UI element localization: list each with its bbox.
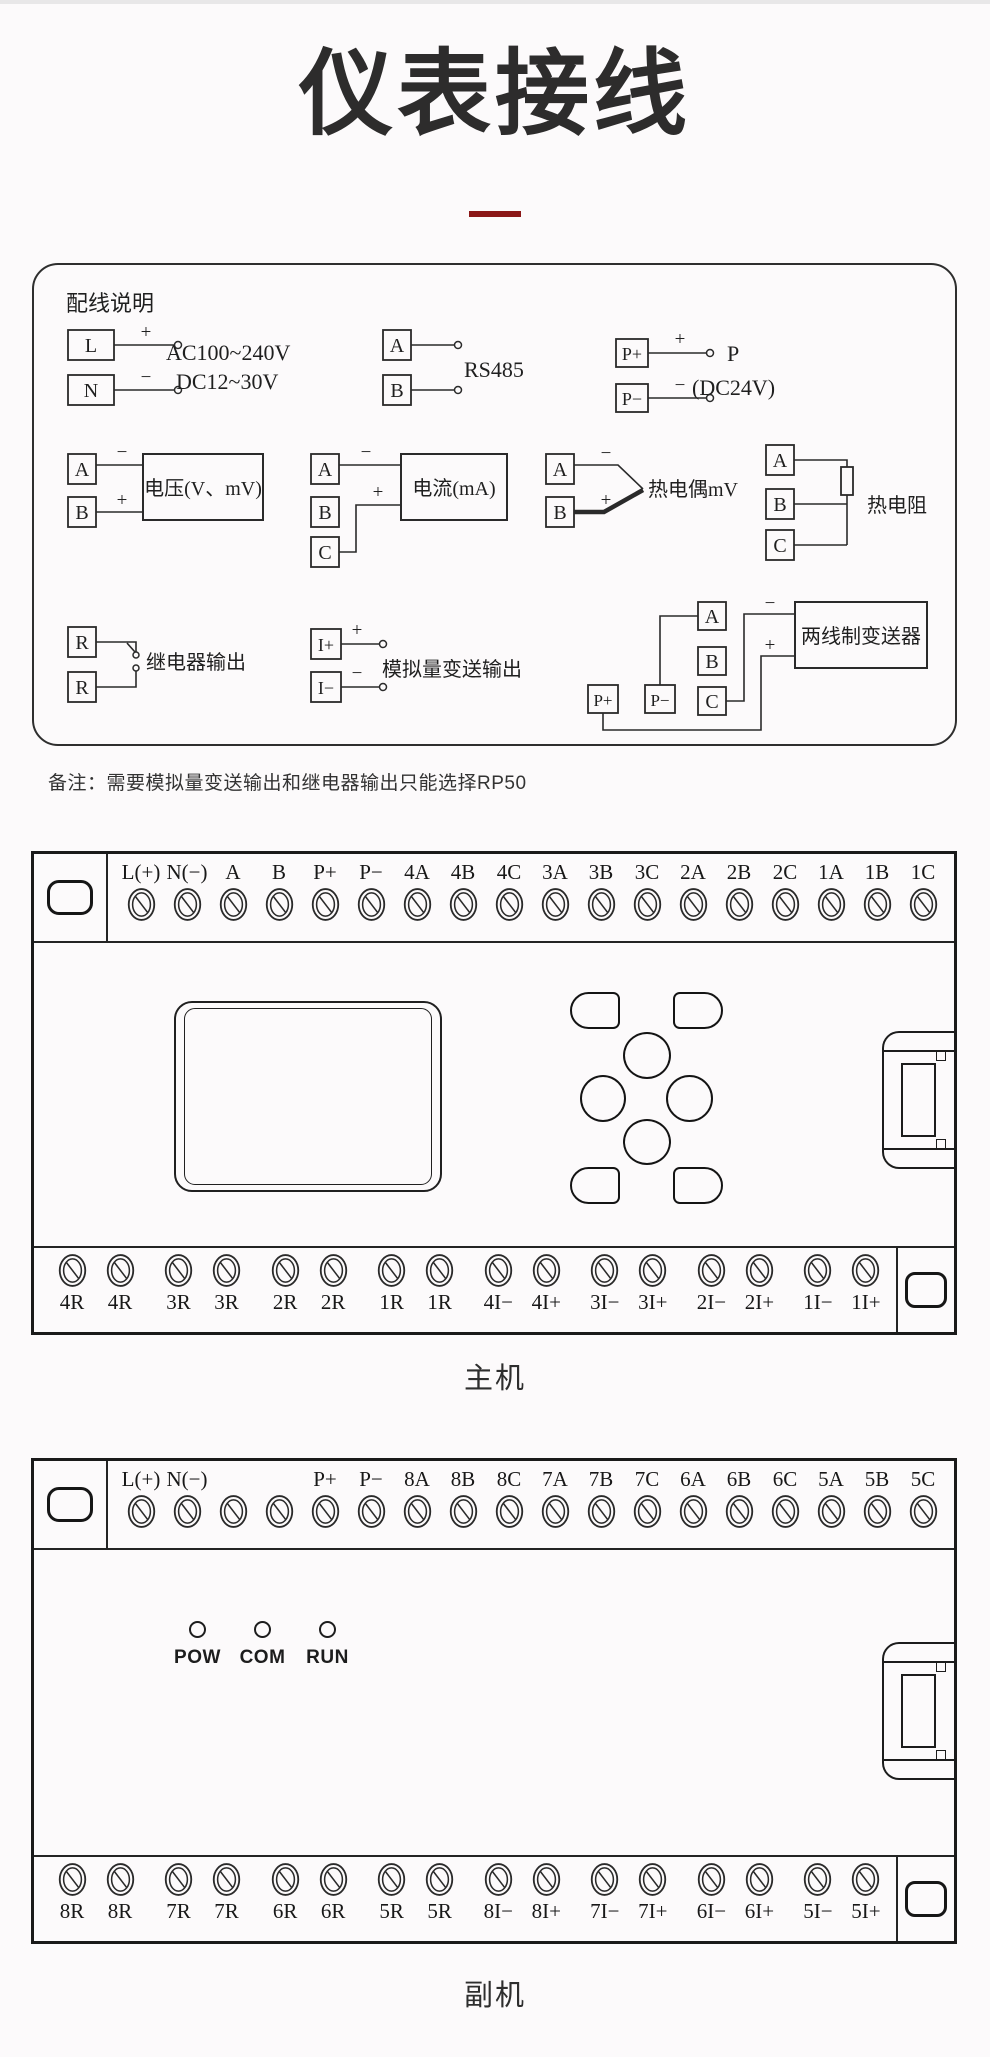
- terminal-label: 5B: [865, 1466, 890, 1493]
- terminal-label: 1R: [427, 1289, 452, 1315]
- terminal-label: 4B: [451, 859, 476, 886]
- terminal: 8B: [440, 1466, 486, 1548]
- dc24v-label: (DC24V): [692, 375, 775, 400]
- screw-terminal-icon: [771, 1494, 800, 1529]
- terminal-a: A: [773, 450, 788, 472]
- terminal-label: 4I+: [532, 1289, 561, 1315]
- terminal: 8R: [54, 1862, 90, 1941]
- screw-terminal-icon: [863, 1494, 892, 1529]
- terminal-label: 5R: [427, 1898, 452, 1924]
- terminal-label: 6R: [273, 1898, 298, 1924]
- terminal: 5R: [374, 1862, 410, 1941]
- screw-terminal-icon: [484, 1253, 513, 1288]
- terminal: 4I+: [528, 1253, 564, 1332]
- p-label: P: [727, 341, 739, 366]
- plus-sign: +: [373, 482, 384, 503]
- terminal-b: B: [705, 651, 718, 673]
- terminal-label: N(−): [167, 1466, 208, 1493]
- screw-terminal-icon: [377, 1253, 406, 1288]
- terminal-label: 2B: [727, 859, 752, 886]
- terminal-label: 8I+: [532, 1898, 561, 1924]
- terminal-c: C: [705, 691, 718, 713]
- terminal-label: N(−): [167, 859, 208, 886]
- connector-inner: [901, 1674, 936, 1748]
- terminal-a: A: [390, 335, 405, 357]
- analog-output-diagram: I+ + I− − 模拟量变送输出: [311, 620, 522, 702]
- analog-output-label: 模拟量变送输出: [382, 658, 522, 681]
- terminal: 2R: [267, 1253, 303, 1332]
- sub-unit-body: POW COM RUN: [34, 1550, 954, 1855]
- screw-terminal-icon: [265, 1494, 294, 1529]
- screw-terminal-icon: [449, 1494, 478, 1529]
- mounting-hole: [47, 1487, 93, 1522]
- terminal: 6R: [267, 1862, 303, 1941]
- screw-terminal-icon: [265, 887, 294, 922]
- terminal-pair: 3R 3R: [161, 1253, 245, 1332]
- minus-sign: −: [117, 442, 128, 463]
- down-button: [623, 1119, 671, 1165]
- terminal-b: B: [773, 494, 786, 516]
- corner-button-bottom-left: [570, 1167, 620, 1204]
- screw-terminal-icon: [697, 1253, 726, 1288]
- connector-tab: [936, 1052, 946, 1061]
- terminal: 7I−: [587, 1862, 623, 1941]
- screw-terminal-icon: [679, 1494, 708, 1529]
- terminal-pair: 5I− 5I+: [800, 1862, 884, 1941]
- screw-terminal-icon: [909, 1494, 938, 1529]
- terminal: 5I+: [848, 1862, 884, 1941]
- screw-terminal-icon: [633, 1494, 662, 1529]
- screw-terminal-icon: [803, 1253, 832, 1288]
- terminal: P+: [302, 859, 348, 941]
- terminal-label: 1B: [865, 859, 890, 886]
- screw-terminal-icon: [851, 1862, 880, 1897]
- screw-terminal-icon: [817, 1494, 846, 1529]
- terminal: 5R: [422, 1862, 458, 1941]
- terminal: 7B: [578, 1466, 624, 1548]
- terminal: 1R: [422, 1253, 458, 1332]
- terminal-label: 3I+: [638, 1289, 667, 1315]
- screw-terminal-icon: [745, 1253, 774, 1288]
- terminal-label: 3R: [166, 1289, 191, 1315]
- terminal-a: A: [75, 459, 90, 481]
- screw-terminal-icon: [851, 1253, 880, 1288]
- terminal: A: [210, 859, 256, 941]
- terminal-label: 5C: [911, 1466, 936, 1493]
- page-title: 仪表接线: [0, 18, 990, 154]
- sub-bottom-terminals: 8R 8R 7R 7R 6R 6R 5R 5R 8I− 8I+ 7I− 7I+: [34, 1857, 896, 1941]
- terminal-b: B: [390, 380, 403, 402]
- terminal-pair: 3I− 3I+: [587, 1253, 671, 1332]
- terminal: 2C: [762, 859, 808, 941]
- screw-terminal-icon: [590, 1862, 619, 1897]
- terminal-pair: 6R 6R: [267, 1862, 351, 1941]
- terminal-label: 2I−: [697, 1289, 726, 1315]
- screw-terminal-icon: [319, 1862, 348, 1897]
- corner-button-bottom-right: [673, 1167, 723, 1204]
- screw-terminal-icon: [106, 1253, 135, 1288]
- resistor-symbol: [841, 467, 853, 495]
- terminal-label: 4R: [60, 1289, 85, 1315]
- rtd-label: 热电阻: [867, 494, 927, 517]
- terminal: 4B: [440, 859, 486, 941]
- sub-top-terminals: L(+) N(−) P+ P− 8A 8B 8C 7A 7B 7C 6A 6B …: [108, 1461, 954, 1548]
- terminal: 1I+: [848, 1253, 884, 1332]
- terminal-label: 4R: [108, 1289, 133, 1315]
- terminal-p-minus: P−: [622, 389, 642, 409]
- side-connector: [882, 1642, 954, 1780]
- led-circle: [189, 1621, 206, 1638]
- mounting-hole-cell: [896, 1857, 954, 1941]
- terminal-label: 2I+: [745, 1289, 774, 1315]
- terminal: 5A: [808, 1466, 854, 1548]
- power-supply-diagram: L + N − AC100~240V DC12~30V: [68, 322, 290, 405]
- connector-tab: [936, 1663, 946, 1672]
- screw-terminal-icon: [212, 1862, 241, 1897]
- terminal: 6I+: [741, 1862, 777, 1941]
- terminal-label: 6A: [680, 1466, 706, 1493]
- terminal-label: 3A: [542, 859, 568, 886]
- screw-terminal-icon: [271, 1253, 300, 1288]
- terminal: 6A: [670, 1466, 716, 1548]
- terminal: 6R: [315, 1862, 351, 1941]
- main-bottom-terminal-strip: 4R 4R 3R 3R 2R 2R 1R 1R 4I− 4I+ 3I− 3I+: [34, 1246, 954, 1332]
- terminal: 7A: [532, 1466, 578, 1548]
- screw-terminal-icon: [271, 1862, 300, 1897]
- screw-terminal-icon: [484, 1862, 513, 1897]
- connector-tab: [936, 1750, 946, 1759]
- minus-sign: −: [352, 663, 363, 684]
- terminal: 4R: [54, 1253, 90, 1332]
- current-input-diagram: A B C − + 电流(mA): [311, 442, 507, 567]
- mounting-hole: [905, 1881, 947, 1917]
- terminal-label: 3I−: [590, 1289, 619, 1315]
- terminal: 7R: [209, 1862, 245, 1941]
- corner-button-top-right: [673, 992, 723, 1029]
- terminal-pair: 5R 5R: [374, 1862, 458, 1941]
- minus-sign: −: [675, 375, 686, 396]
- terminal-label: 8R: [108, 1898, 133, 1924]
- screw-terminal-icon: [725, 887, 754, 922]
- screw-terminal-icon: [357, 1494, 386, 1529]
- terminal: 4R: [102, 1253, 138, 1332]
- screw-terminal-icon: [587, 1494, 616, 1529]
- terminal: 8R: [102, 1862, 138, 1941]
- terminal: [256, 1466, 302, 1548]
- led-com-indicator: COM: [230, 1621, 295, 1669]
- screw-terminal-icon: [449, 887, 478, 922]
- two-wire-transmitter-diagram: A B C P+ P− 两线制变送器 − +: [588, 593, 927, 730]
- terminal-p-minus: P−: [650, 691, 669, 710]
- terminal-label: 7R: [166, 1898, 191, 1924]
- main-top-terminal-strip: L(+) N(−) A B P+ P− 4A 4B 4C 3A 3B 3C 2A…: [34, 854, 954, 943]
- connector-line: [884, 1759, 954, 1761]
- screw-terminal-icon: [357, 887, 386, 922]
- terminal-pair: 2R 2R: [267, 1253, 351, 1332]
- terminal-b: B: [75, 502, 88, 524]
- led-circle: [254, 1621, 271, 1638]
- screw-terminal-icon: [495, 887, 524, 922]
- screw-terminal-icon: [697, 1862, 726, 1897]
- terminal: 4C: [486, 859, 532, 941]
- screw-terminal-icon: [909, 887, 938, 922]
- terminal: 8C: [486, 1466, 532, 1548]
- terminal-label: 8R: [60, 1898, 85, 1924]
- terminal-label: 5I+: [851, 1898, 880, 1924]
- mounting-hole-cell: [34, 854, 108, 941]
- sub-unit-panel: L(+) N(−) P+ P− 8A 8B 8C 7A 7B 7C 6A 6B …: [31, 1458, 957, 1944]
- terminal-label: 6I+: [745, 1898, 774, 1924]
- terminal: 4I−: [480, 1253, 516, 1332]
- terminal-label: 8B: [451, 1466, 476, 1493]
- power-range-ac: AC100~240V: [166, 340, 290, 365]
- terminal-pair: 7R 7R: [161, 1862, 245, 1941]
- terminal: 7I+: [635, 1862, 671, 1941]
- terminal-label: L(+): [122, 859, 161, 886]
- rtd-diagram: A B C 热电阻: [766, 445, 927, 560]
- screw-terminal-icon: [403, 1494, 432, 1529]
- terminal: N(−): [164, 1466, 210, 1548]
- terminal: P−: [348, 859, 394, 941]
- terminal-c: C: [773, 535, 786, 557]
- terminal-label: 5I−: [803, 1898, 832, 1924]
- screw-terminal-icon: [377, 1862, 406, 1897]
- terminal: 3R: [161, 1253, 197, 1332]
- plus-sign: +: [601, 490, 612, 511]
- terminal-label: 5A: [818, 1466, 844, 1493]
- corner-button-top-left: [570, 992, 620, 1029]
- switch-blade: [127, 643, 135, 652]
- terminal: 4A: [394, 859, 440, 941]
- terminal-label: 6C: [773, 1466, 798, 1493]
- connector-tab: [936, 1139, 946, 1148]
- terminal: 3I+: [635, 1253, 671, 1332]
- connector-line: [884, 1148, 954, 1150]
- terminal: 5C: [900, 1466, 946, 1548]
- terminal-label: 6I−: [697, 1898, 726, 1924]
- led-run-indicator: RUN: [295, 1621, 360, 1669]
- screw-terminal-icon: [532, 1862, 561, 1897]
- thermocouple-label: 热电偶mV: [648, 478, 739, 501]
- terminal: 2B: [716, 859, 762, 941]
- screw-terminal-icon: [127, 887, 156, 922]
- voltage-input-diagram: A B − + 电压(V、mV): [68, 442, 263, 527]
- screw-terminal-icon: [219, 887, 248, 922]
- terminal: 6B: [716, 1466, 762, 1548]
- terminal-a: A: [553, 459, 568, 481]
- screw-terminal-icon: [173, 887, 202, 922]
- left-button: [580, 1075, 626, 1122]
- terminal-label: 7C: [635, 1466, 660, 1493]
- terminal: 3B: [578, 859, 624, 941]
- main-unit-body: [34, 943, 954, 1246]
- screw-terminal-icon: [425, 1253, 454, 1288]
- terminal-label: 7I−: [590, 1898, 619, 1924]
- rs485-diagram: A B RS485: [383, 330, 524, 405]
- terminal-label: 3R: [214, 1289, 239, 1315]
- terminal-label: 1I+: [851, 1289, 880, 1315]
- terminal-b: B: [553, 502, 566, 524]
- terminal-pair: 8R 8R: [54, 1862, 138, 1941]
- screw-terminal-icon: [771, 887, 800, 922]
- terminal: 3I−: [587, 1253, 623, 1332]
- terminal-label: 1C: [911, 859, 936, 886]
- terminal-label: 8A: [404, 1466, 430, 1493]
- screw-terminal-icon: [495, 1494, 524, 1529]
- screw-terminal-icon: [532, 1253, 561, 1288]
- terminal: 1R: [374, 1253, 410, 1332]
- terminal-label: 2R: [273, 1289, 298, 1315]
- dc24v-output-diagram: P+ + P− − P (DC24V): [616, 329, 775, 412]
- terminal-pair: 2I− 2I+: [693, 1253, 777, 1332]
- connector-inner: [901, 1063, 936, 1137]
- mounting-hole: [47, 880, 93, 915]
- top-gray-strip: [0, 0, 990, 4]
- mounting-hole-cell: [34, 1461, 108, 1548]
- main-bottom-terminals: 4R 4R 3R 3R 2R 2R 1R 1R 4I− 4I+ 3I− 3I+: [34, 1248, 896, 1332]
- terminal-a: A: [318, 459, 333, 481]
- screw-terminal-icon: [212, 1253, 241, 1288]
- terminal-pair: 4I− 4I+: [480, 1253, 564, 1332]
- minus-sign: −: [765, 593, 776, 614]
- terminal-label: 4I−: [484, 1289, 513, 1315]
- terminal: L(+): [118, 1466, 164, 1548]
- red-divider: [469, 211, 521, 217]
- screw-terminal-icon: [541, 887, 570, 922]
- screw-terminal-icon: [590, 1253, 619, 1288]
- relay-label: 继电器输出: [146, 651, 246, 674]
- terminal-label: 3C: [635, 859, 660, 886]
- terminal: 3C: [624, 859, 670, 941]
- display-screen-inner: [184, 1008, 432, 1185]
- terminal: 1B: [854, 859, 900, 941]
- terminal-label: 1A: [818, 859, 844, 886]
- terminal-pair: 7I− 7I+: [587, 1862, 671, 1941]
- led-pow-indicator: POW: [165, 1621, 230, 1669]
- rs485-label: RS485: [464, 357, 524, 382]
- screw-terminal-icon: [425, 1862, 454, 1897]
- sub-bottom-terminal-strip: 8R 8R 7R 7R 6R 6R 5R 5R 8I− 8I+ 7I− 7I+: [34, 1855, 954, 1941]
- terminal-label: A: [225, 859, 240, 886]
- screw-terminal-icon: [817, 887, 846, 922]
- terminal: 8I−: [480, 1862, 516, 1941]
- current-label: 电流(mA): [412, 477, 495, 500]
- sub-unit-caption: 副机: [0, 1972, 990, 2014]
- plus-sign: +: [675, 329, 686, 350]
- terminal: 2I+: [741, 1253, 777, 1332]
- terminal-label: 2A: [680, 859, 706, 886]
- terminal-label: 4C: [497, 859, 522, 886]
- terminal-label: 8C: [497, 1466, 522, 1493]
- screw-terminal-icon: [803, 1862, 832, 1897]
- terminal: [210, 1466, 256, 1548]
- screw-terminal-icon: [311, 887, 340, 922]
- terminal-pair: 4R 4R: [54, 1253, 138, 1332]
- wiring-diagram: 配线说明 L + N − AC100~240V DC12~30V A B RS4…: [34, 265, 954, 743]
- terminal: 6I−: [693, 1862, 729, 1941]
- terminal-c: C: [318, 542, 331, 564]
- wiring-heading: 配线说明: [66, 291, 154, 316]
- terminal-b: B: [318, 502, 331, 524]
- display-screen: [174, 1001, 442, 1192]
- mounting-hole: [905, 1272, 947, 1308]
- plus-sign: +: [765, 635, 776, 656]
- terminal-label: P−: [359, 1466, 383, 1493]
- terminal-a: A: [705, 606, 720, 628]
- screw-terminal-icon: [173, 1494, 202, 1529]
- power-range-dc: DC12~30V: [176, 369, 278, 394]
- terminal-label: 2C: [773, 859, 798, 886]
- plus-sign: +: [117, 490, 128, 511]
- terminal: L(+): [118, 859, 164, 941]
- terminal-n: N: [84, 380, 98, 402]
- terminal-label: 5R: [379, 1898, 404, 1924]
- status-leds: POW COM RUN: [165, 1621, 360, 1669]
- terminal-label: L(+): [122, 1466, 161, 1493]
- terminal: 2A: [670, 859, 716, 941]
- voltage-label: 电压(V、mV): [144, 477, 262, 500]
- terminal-label: 1I−: [803, 1289, 832, 1315]
- screw-terminal-icon: [319, 1253, 348, 1288]
- minus-sign: −: [361, 442, 372, 463]
- side-connector: [882, 1031, 954, 1169]
- terminal-i-plus: I+: [318, 635, 334, 655]
- terminal: 2R: [315, 1253, 351, 1332]
- terminal: 8A: [394, 1466, 440, 1548]
- terminal-label: 7I+: [638, 1898, 667, 1924]
- terminal-label: 1R: [379, 1289, 404, 1315]
- terminal-label: P−: [359, 859, 383, 886]
- keypad: [570, 992, 723, 1204]
- main-unit-panel: L(+) N(−) A B P+ P− 4A 4B 4C 3A 3B 3C 2A…: [31, 851, 957, 1335]
- screw-terminal-icon: [164, 1862, 193, 1897]
- terminal: 3A: [532, 859, 578, 941]
- screw-terminal-icon: [58, 1253, 87, 1288]
- screw-terminal-icon: [106, 1862, 135, 1897]
- screw-terminal-icon: [638, 1862, 667, 1897]
- wiring-instruction-box: 配线说明 L + N − AC100~240V DC12~30V A B RS4…: [32, 263, 957, 746]
- terminal: 5B: [854, 1466, 900, 1548]
- terminal-p-plus: P+: [622, 344, 642, 364]
- terminal: 5I−: [800, 1862, 836, 1941]
- terminal: 6C: [762, 1466, 808, 1548]
- screw-terminal-icon: [679, 887, 708, 922]
- terminal: N(−): [164, 859, 210, 941]
- terminal-label: 4A: [404, 859, 430, 886]
- terminal: 1A: [808, 859, 854, 941]
- terminal: 1C: [900, 859, 946, 941]
- terminal-pair: 1I− 1I+: [800, 1253, 884, 1332]
- led-circle: [319, 1621, 336, 1638]
- terminal: 7C: [624, 1466, 670, 1548]
- screw-terminal-icon: [219, 1494, 248, 1529]
- screw-terminal-icon: [725, 1494, 754, 1529]
- minus-sign: −: [601, 443, 612, 464]
- terminal-p-plus: P+: [593, 691, 612, 710]
- screw-terminal-icon: [633, 887, 662, 922]
- terminal-label: B: [272, 859, 286, 886]
- terminal-label: P+: [313, 859, 337, 886]
- sub-top-terminal-strip: L(+) N(−) P+ P− 8A 8B 8C 7A 7B 7C 6A 6B …: [34, 1461, 954, 1550]
- right-button: [666, 1075, 713, 1122]
- main-unit-caption: 主机: [0, 1355, 990, 1397]
- screw-terminal-icon: [587, 887, 616, 922]
- minus-sign: −: [141, 367, 152, 388]
- terminal-label: 6R: [321, 1898, 346, 1924]
- mounting-hole-cell: [896, 1248, 954, 1332]
- terminal: B: [256, 859, 302, 941]
- note: 备注：需要模拟量变送输出和继电器输出只能选择RP50: [48, 768, 527, 795]
